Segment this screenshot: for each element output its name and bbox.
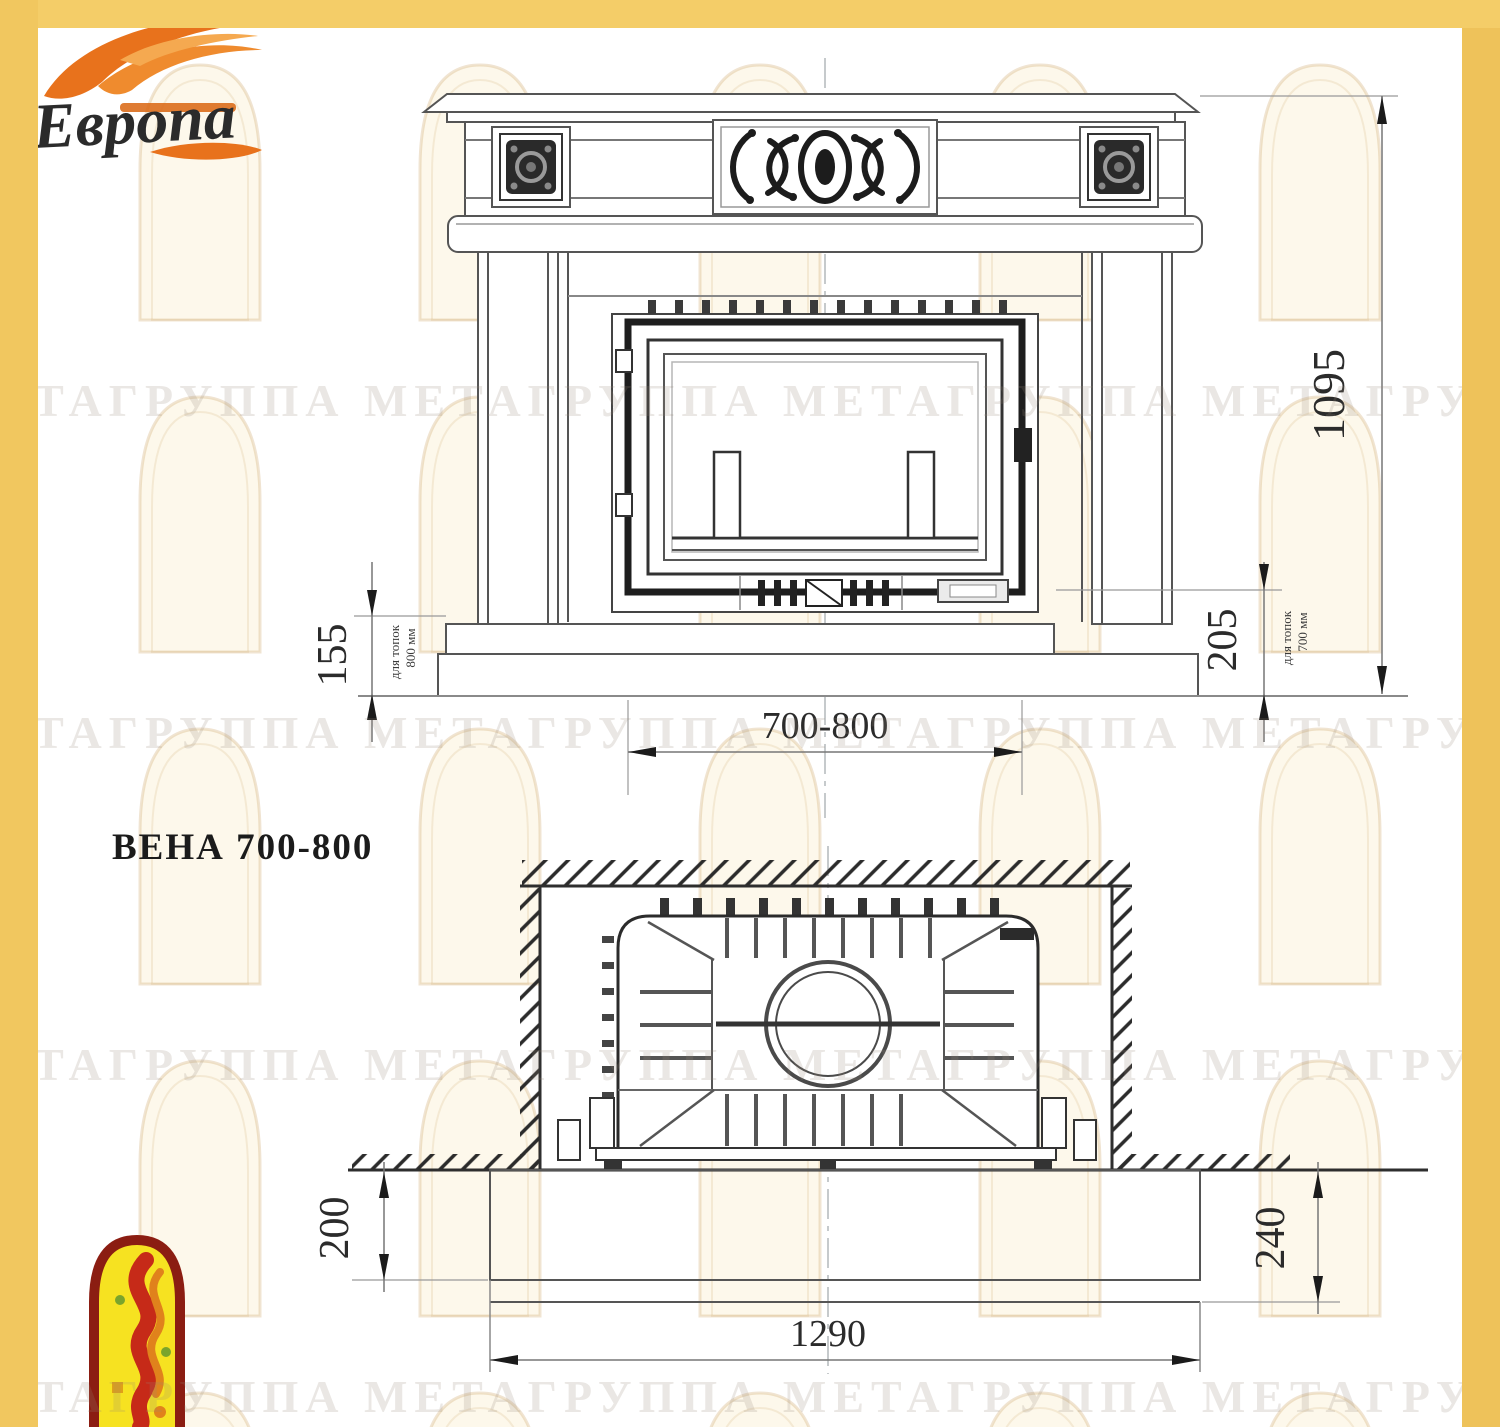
cooling-fins — [634, 300, 1016, 314]
technical-drawing: 1095 155 для топок 800 мм 205 для топок … — [0, 0, 1500, 1427]
dim-hearth-155: 155 для топок 800 мм — [310, 562, 446, 742]
firebox-plan — [558, 898, 1096, 1169]
door-latch — [1014, 428, 1032, 462]
logo-wordmark: Европа — [30, 80, 237, 162]
dim-label-240: 240 — [1248, 1207, 1294, 1270]
base-plinth — [438, 624, 1198, 696]
note-for-800-line1: для топок — [387, 624, 402, 679]
front-view-drawing: 1095 155 для топок 800 мм 205 для топок … — [310, 58, 1408, 818]
frame-right — [1462, 28, 1500, 1427]
center-ornament-panel — [713, 120, 937, 214]
note-for-700-line2: 700 мм — [1295, 612, 1310, 651]
rosette-right — [1080, 127, 1158, 207]
page: { "logo": { "name": "Европа" }, "title":… — [0, 0, 1500, 1427]
mantel-shelf — [424, 94, 1198, 122]
meta-emblem — [94, 1240, 180, 1427]
dim-label-200: 200 — [312, 1197, 358, 1260]
note-for-800-line2: 800 мм — [403, 628, 418, 667]
air-vent-grille — [758, 580, 889, 606]
dim-slab-200: 200 — [312, 1162, 488, 1292]
molding-band — [448, 216, 1202, 252]
log-guard-right — [908, 452, 934, 538]
front-rail — [596, 1148, 1056, 1160]
hinge-bottom — [616, 494, 632, 516]
dim-label-1095: 1095 — [1303, 349, 1354, 441]
note-for-700-line1: для топок — [1279, 610, 1294, 665]
plan-cooling-fins — [646, 898, 1022, 916]
dim-label-700-800: 700-800 — [762, 705, 889, 747]
dim-slab-width: 1290 — [490, 1313, 1200, 1365]
dim-label-155: 155 — [310, 624, 356, 687]
dim-label-205: 205 — [1200, 609, 1246, 672]
dim-slab-240: 240 — [1202, 1162, 1340, 1314]
frame-left — [0, 0, 38, 1427]
page-title: ВЕНА 700-800 — [112, 826, 373, 869]
frame-top — [0, 0, 1500, 28]
firebox-insert — [612, 300, 1038, 612]
hinge-top — [616, 350, 632, 372]
log-guard-left — [714, 452, 740, 538]
europa-logo: Европа — [30, 18, 282, 162]
glass-door — [664, 354, 986, 560]
rosette-left — [492, 127, 570, 207]
dim-label-1290: 1290 — [790, 1313, 866, 1355]
dim-total-height: 1095 — [1200, 96, 1398, 694]
plan-view-drawing: 200 240 1290 — [312, 846, 1428, 1374]
